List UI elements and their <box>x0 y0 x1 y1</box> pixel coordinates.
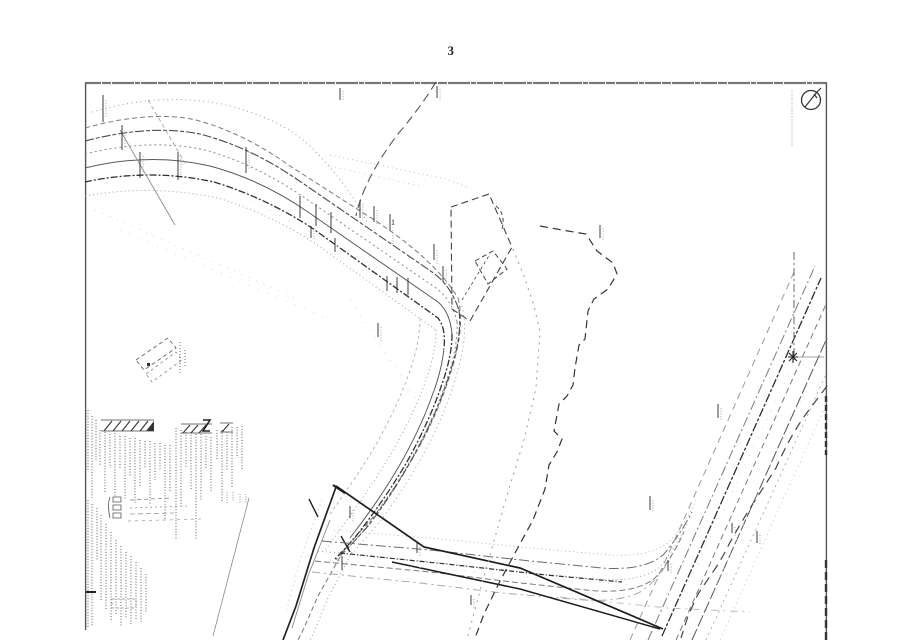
water-boundary-dashed <box>475 226 617 638</box>
north-arrow-icon <box>802 88 822 110</box>
right-road-corridor <box>630 252 827 640</box>
illegible-micro-labels <box>106 89 792 609</box>
scanned-plan-sheet: 3 <box>0 0 905 640</box>
plan-area-label: 1 <box>391 218 395 227</box>
annotation-text-block <box>88 410 242 540</box>
building-footprints <box>136 338 185 382</box>
sheet-frame <box>85 83 827 640</box>
page-number: 3 <box>448 44 455 58</box>
scan-noise <box>95 200 810 620</box>
embankment-corridor-upper <box>85 100 459 349</box>
lower-road-corridor <box>312 500 750 612</box>
left-margin-notes <box>86 492 249 636</box>
parcel-outline-dashed <box>451 194 512 321</box>
road-edge-dashed-curve <box>330 82 470 216</box>
embankment-corridor-vertical <box>324 298 465 560</box>
site-plan-drawing: 3 <box>0 0 905 640</box>
right-shore-boundary-dashed <box>681 386 827 638</box>
